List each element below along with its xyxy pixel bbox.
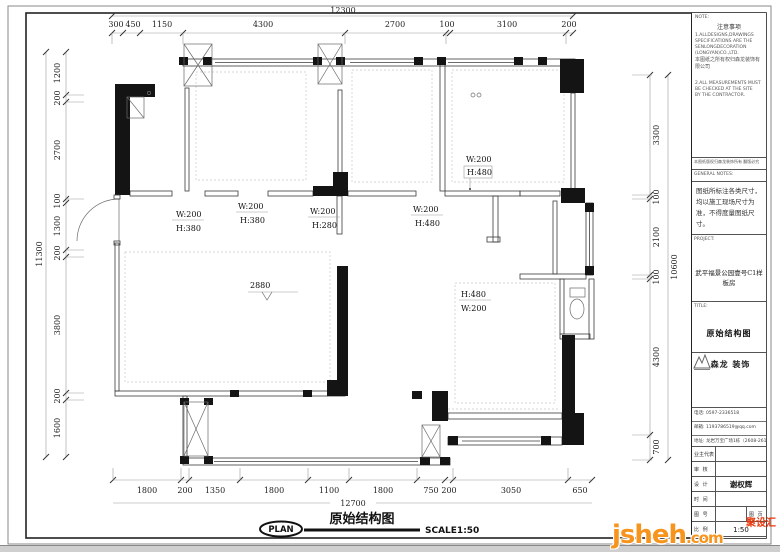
company-name: 森龙 装饰 <box>711 359 751 370</box>
contact-section: 电话: 0597-2336518 邮箱: 1193786519@qq.com 地… <box>692 408 766 447</box>
svg-text:10600: 10600 <box>670 254 679 279</box>
bottom-dimension-chain: 1800 200 1350 1800 1100 1800 750 200 305… <box>110 468 595 508</box>
svg-text:2880: 2880 <box>250 281 270 290</box>
svg-text:H:480: H:480 <box>467 168 492 177</box>
floor-height-marker: 2880 <box>248 281 298 300</box>
svg-text:2700: 2700 <box>385 20 405 29</box>
svg-text:3050: 3050 <box>501 486 521 495</box>
svg-text:W:200: W:200 <box>466 155 492 164</box>
plan-title: 原始结构图 <box>329 511 394 527</box>
svg-text:200: 200 <box>53 90 62 105</box>
svg-text:1100: 1100 <box>319 486 339 495</box>
svg-text:11300: 11300 <box>35 241 44 266</box>
plan-title-bar: PLAN 原始结构图 SCALE1:50 <box>260 511 479 537</box>
designer-name: 谢权辉 <box>716 477 766 491</box>
svg-text:1350: 1350 <box>205 486 225 495</box>
svg-text:100: 100 <box>652 189 661 204</box>
general-notes-label-row: GENERAL NOTES: <box>692 170 766 182</box>
address-row: 地址: 龙岩万宝广场1栋（2608-2611） <box>692 436 766 447</box>
svg-text:200: 200 <box>441 486 456 495</box>
note-title: 注意事项 <box>695 22 763 31</box>
company-logo-section: 森龙 装饰 <box>692 353 766 408</box>
ac-shaft-bottom-left <box>184 402 208 456</box>
signature-table: 业主代表 审 核 设 计 谢权辉 时 间 图 号 图 页 比 例 1:50 <box>692 447 766 537</box>
note-label: NOTE: <box>695 15 763 21</box>
review-row: 审 核 <box>692 462 766 477</box>
svg-text:100: 100 <box>652 269 661 284</box>
svg-text:H:480: H:480 <box>461 290 486 299</box>
phone-row: 电话: 0597-2336518 <box>692 408 766 422</box>
title-block: NOTE: 注意事项 1.ALLDESIGNS,DRAWINGS SPECIFI… <box>691 13 766 538</box>
svg-text:1200: 1200 <box>53 63 62 83</box>
owner-row: 业主代表 <box>692 447 766 462</box>
svg-text:650: 650 <box>572 486 587 495</box>
svg-text:450: 450 <box>125 20 140 29</box>
svg-text:200: 200 <box>53 388 62 403</box>
floor-plan-canvas: 12300 300 450 1150 4300 2700 100 3100 20… <box>0 0 780 551</box>
project-section: PROJECT: 武平福景公园壹号C1样板房 <box>692 235 766 302</box>
drawing-title: 原始结构图 <box>694 328 764 339</box>
title-label: TITLE: <box>694 304 764 310</box>
notes-section: NOTE: 注意事项 1.ALLDESIGNS,DRAWINGS SPECIFI… <box>692 13 766 158</box>
svg-text:1800: 1800 <box>373 486 393 495</box>
copyright-row: 本图纸版权归森龙装饰所有 翻版必究 <box>692 158 766 170</box>
plan-badge: PLAN <box>268 525 293 535</box>
svg-text:200: 200 <box>177 486 192 495</box>
svg-text:2100: 2100 <box>652 227 661 247</box>
structural-columns <box>115 57 594 465</box>
design-row: 设 计 谢权辉 <box>692 477 766 492</box>
svg-text:100: 100 <box>53 193 62 208</box>
svg-text:700: 700 <box>652 439 661 454</box>
sheet-number-row: 图 号 图 页 <box>692 507 766 522</box>
svg-text:300: 300 <box>108 20 123 29</box>
svg-text:1300: 1300 <box>53 216 62 236</box>
scale-row: 比 例 1:50 <box>692 522 766 537</box>
email-row: 邮箱: 1193786519@qq.com <box>692 422 766 436</box>
svg-text:200: 200 <box>53 245 62 260</box>
svg-text:12300: 12300 <box>330 6 355 15</box>
right-dimension-chain: 3300 100 2100 100 4300 700 10600 <box>632 72 679 463</box>
svg-text:1800: 1800 <box>264 486 284 495</box>
svg-text:H:380: H:380 <box>240 216 265 225</box>
project-label: PROJECT: <box>694 237 764 243</box>
svg-text:1600: 1600 <box>53 418 62 438</box>
svg-text:4300: 4300 <box>253 20 273 29</box>
svg-text:3800: 3800 <box>53 315 62 335</box>
svg-text:100: 100 <box>439 20 454 29</box>
drawing-title-section: TITLE: 原始结构图 <box>692 302 766 353</box>
ac-shaft-bottom-middle <box>422 425 440 457</box>
svg-text:H:280: H:280 <box>312 221 337 230</box>
svg-text:750: 750 <box>423 486 438 495</box>
entry-door-swing <box>77 195 120 245</box>
svg-text:W:200: W:200 <box>413 205 439 214</box>
svg-text:H:380: H:380 <box>176 224 201 233</box>
toilet-fixture <box>570 288 585 319</box>
top-dimension-chain: 12300 300 450 1150 4300 2700 100 3100 20… <box>108 6 576 44</box>
svg-text:3300: 3300 <box>652 125 661 145</box>
svg-text:W:200: W:200 <box>310 207 336 216</box>
svg-text:1150: 1150 <box>152 20 172 29</box>
drawing-sheet: 12300 300 450 1150 4300 2700 100 3100 20… <box>0 0 780 545</box>
date-row: 时 间 <box>692 492 766 507</box>
scale-value: 1:50 <box>716 522 766 537</box>
svg-text:2700: 2700 <box>53 140 62 160</box>
left-dimension-chain: 11300 1200 200 2700 100 1300 200 3800 20… <box>35 49 84 460</box>
svg-text:12700: 12700 <box>340 499 365 508</box>
wall-opening-labels: W:200 H:380 W:200 H:380 W:200 H:280 W:20… <box>172 155 492 313</box>
svg-text:W:200: W:200 <box>461 304 487 313</box>
svg-text:200: 200 <box>561 20 576 29</box>
scale-note: SCALE1:50 <box>425 526 479 536</box>
svg-text:1800: 1800 <box>137 486 157 495</box>
svg-text:W:200: W:200 <box>238 202 264 211</box>
svg-text:4300: 4300 <box>652 347 661 367</box>
svg-text:W:200: W:200 <box>176 210 202 219</box>
project-name: 武平福景公园壹号C1样板房 <box>694 267 764 287</box>
general-notes-text: 图纸所标注各类尺寸，均以施工现场尺寸为准，不得度量图纸尺寸。 <box>692 182 766 235</box>
svg-text:H:480: H:480 <box>415 219 440 228</box>
svg-text:3100: 3100 <box>497 20 517 29</box>
